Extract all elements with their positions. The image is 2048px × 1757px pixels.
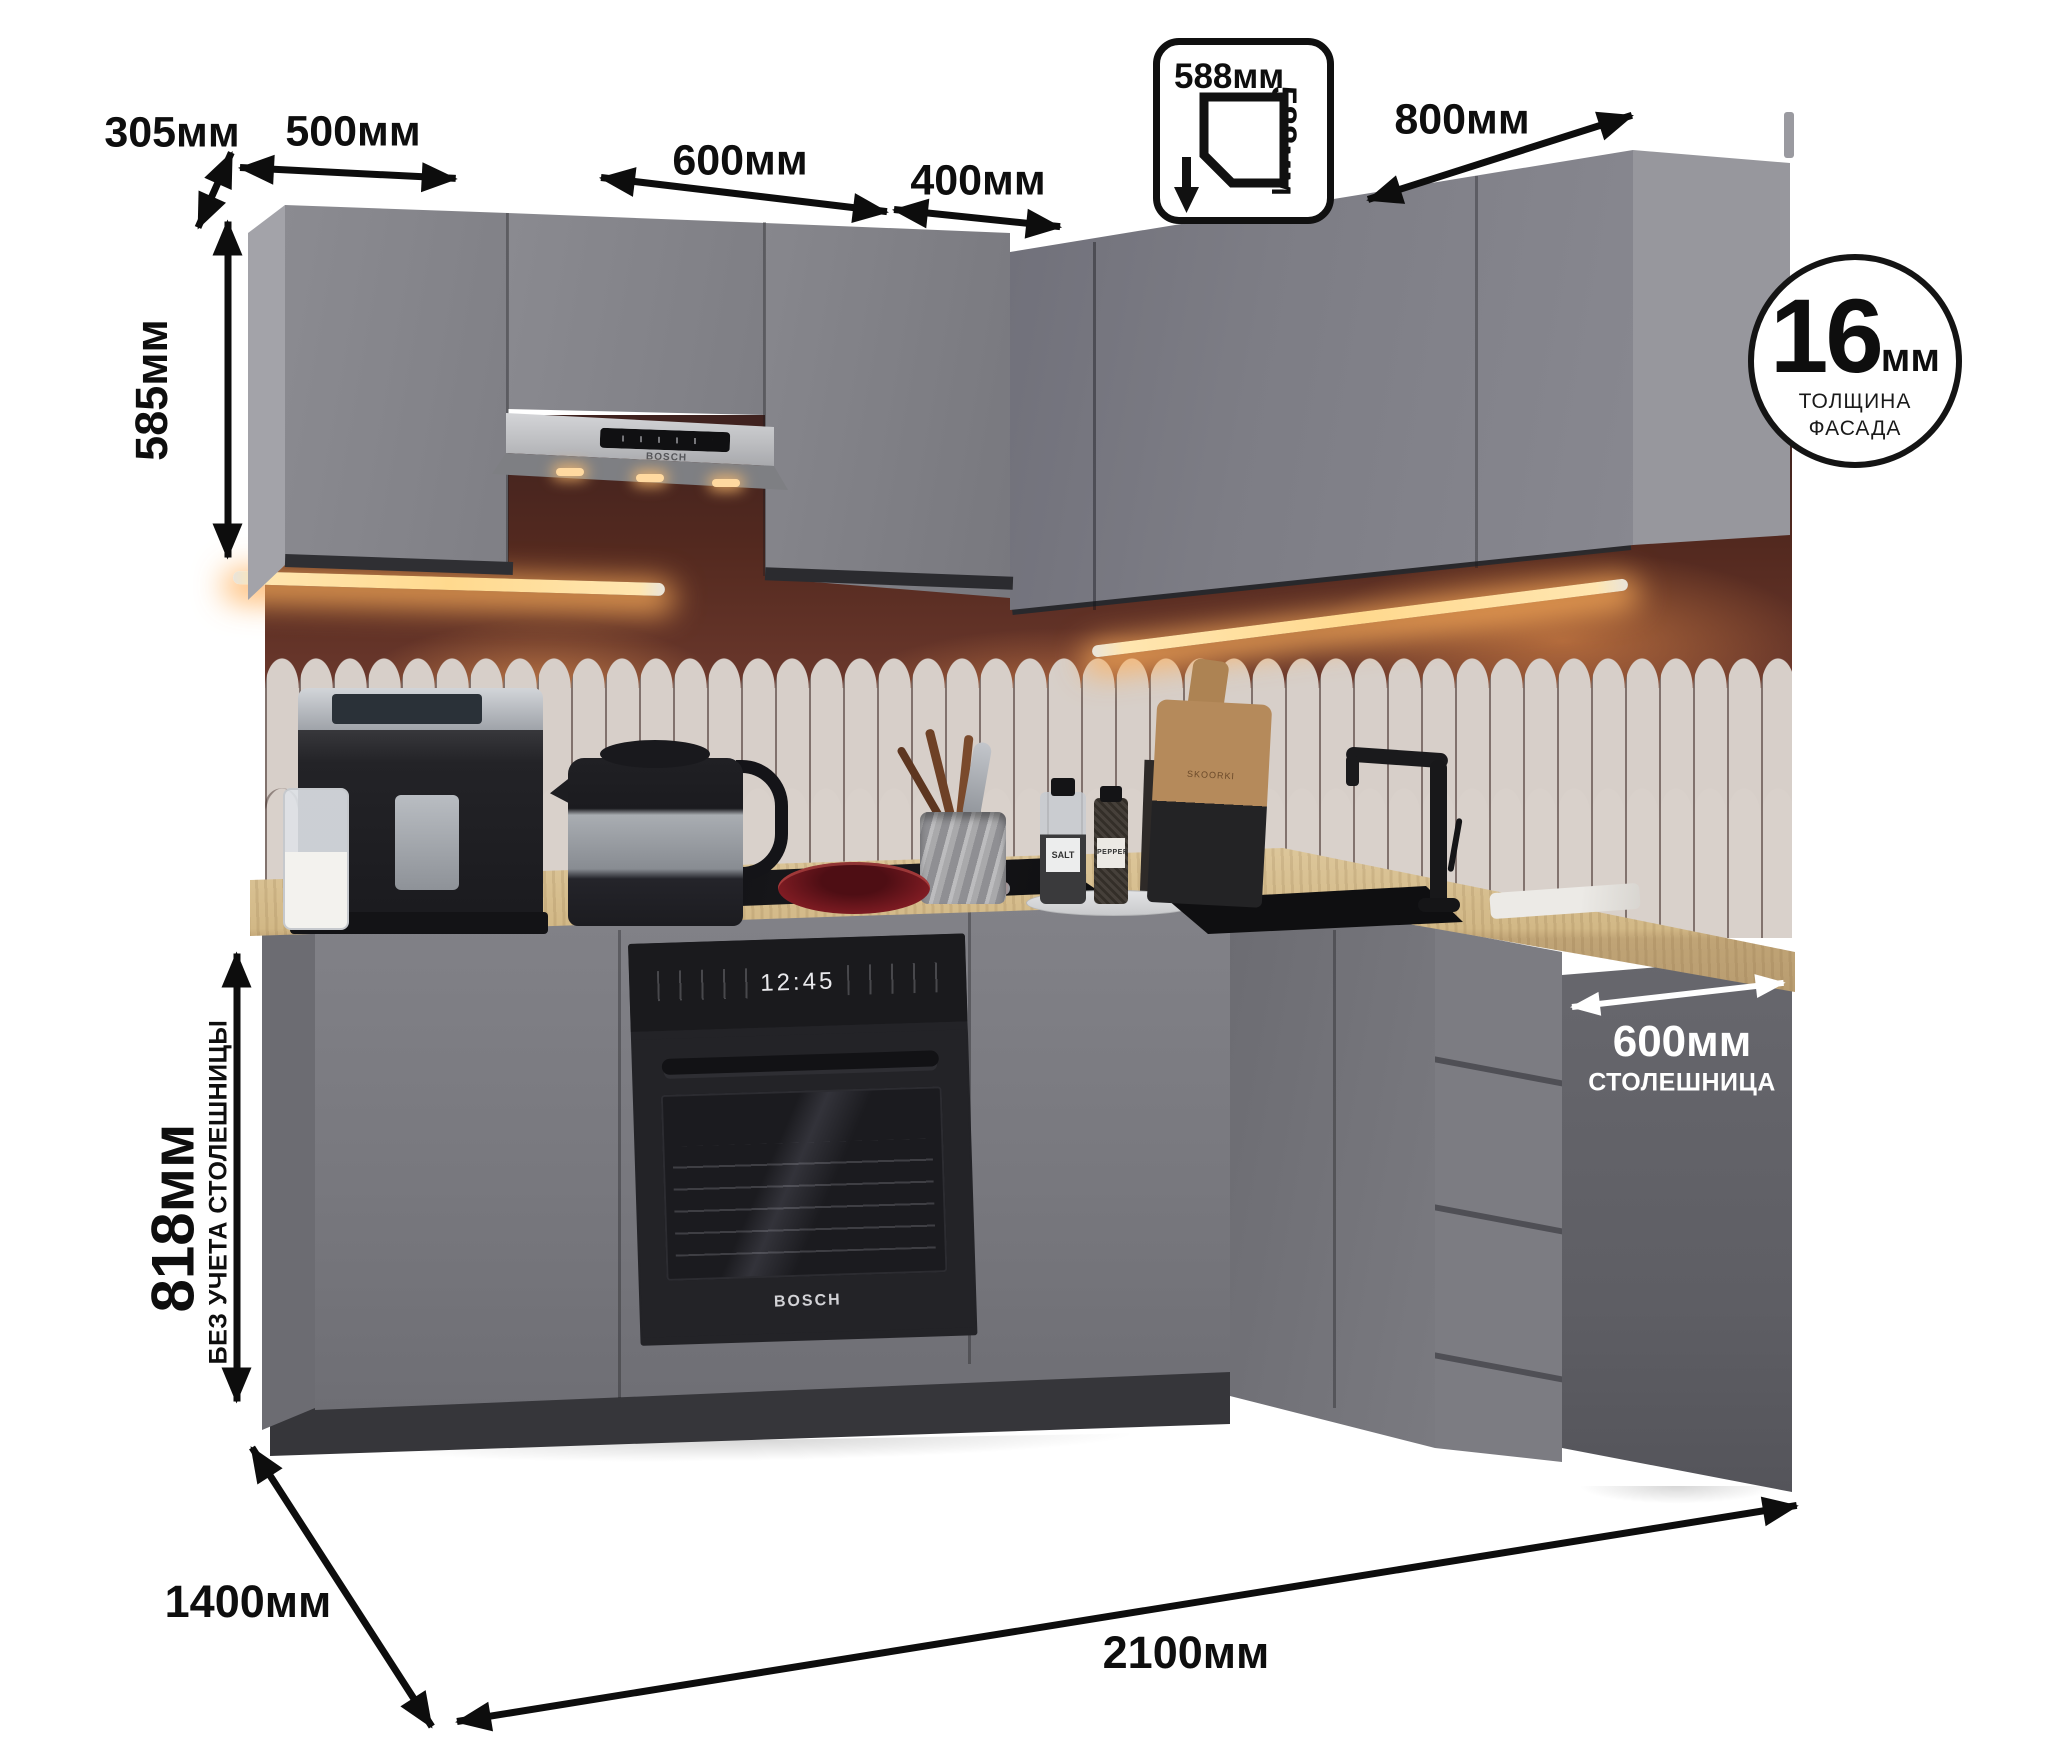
arrow-500 [240, 164, 456, 182]
hood-light-3 [712, 479, 740, 487]
hood-light-1 [556, 468, 584, 476]
arrow-305 [195, 151, 235, 229]
label-400: 400мм [910, 157, 1045, 206]
hood-light-2 [636, 474, 664, 482]
upper-cabinet-left-side-panel [248, 205, 285, 605]
pan-body [778, 862, 930, 914]
facade-thickness-unit: мм [1881, 338, 1940, 380]
faucet-spout-tip [1346, 756, 1359, 786]
base-left-side-panel [262, 928, 315, 1432]
facade-thickness-badge: 16 мм ТОЛЩИНА ФАСАДА [1748, 254, 1962, 468]
oven-door: BOSCH [633, 1029, 975, 1337]
pepper-grinder: PEPPER [1094, 798, 1128, 904]
kettle-lid [600, 740, 710, 768]
base-door-seam-1 [618, 930, 621, 1398]
drawer-gap-2 [1432, 1204, 1563, 1234]
faucet-column [1430, 760, 1447, 908]
oven-window [661, 1086, 948, 1281]
cutting-board: SKOORKI [1147, 699, 1272, 908]
corner-cabinet-badge: 588мм 588мм [1153, 38, 1334, 224]
label-500: 500мм [285, 108, 420, 157]
oven-control-panel: 12:45 [628, 933, 968, 1032]
pepper-cap [1100, 786, 1122, 802]
oven-rack-lines [672, 1139, 935, 1257]
wall-mount-bracket [1784, 112, 1794, 158]
utensil-crock [920, 812, 1006, 904]
oven-brand: BOSCH [774, 1291, 842, 1311]
kettle-body [568, 758, 743, 926]
salt-cap [1051, 778, 1075, 796]
label-countertop-caption: СТОЛЕШНИЦА [1588, 1069, 1776, 1098]
upper-cabinet-600-door [508, 213, 765, 415]
coffee-machine-screen [332, 694, 482, 724]
arrow-400 [894, 206, 1061, 230]
drawer-gap-1 [1432, 1056, 1563, 1086]
kitchen-dimension-diagram: BOSCH 12:45 BOSCH [0, 0, 2048, 1757]
base-drawer-stack [1435, 926, 1562, 1466]
upper-right-door-seam [1475, 176, 1478, 568]
label-600: 600мм [672, 137, 807, 186]
label-818-note: БЕЗ УЧЕТА СТОЛЕШНИЦЫ [205, 1020, 234, 1365]
oven-handle [662, 1050, 939, 1075]
upper-door-seam-1 [506, 213, 509, 569]
label-countertop-600: 600мм [1613, 1017, 1752, 1067]
arrow-818 [234, 954, 241, 1402]
faucet-base [1418, 898, 1460, 912]
label-1400: 1400мм [165, 1576, 332, 1628]
base-right-door-seam [1333, 930, 1336, 1408]
upper-door-seam-2 [763, 222, 766, 576]
oven-clock: 12:45 [760, 968, 836, 998]
oven: 12:45 BOSCH [628, 933, 977, 1345]
facade-caption-line2: ФАСАДА [1754, 415, 1956, 442]
range-hood-brand: BOSCH [646, 451, 687, 463]
cutting-board-brand: SKOORKI [1187, 769, 1235, 781]
salt-label: SALT [1046, 838, 1080, 872]
drawer-gap-3 [1432, 1352, 1563, 1382]
label-2100: 2100мм [1103, 1627, 1270, 1679]
down-arrow-icon [1174, 157, 1199, 213]
facade-thickness-value: 16 [1770, 294, 1881, 380]
pepper-label: PEPPER [1097, 838, 1125, 868]
corner-cabinet-icon [1172, 91, 1292, 217]
label-305: 305мм [104, 109, 239, 158]
label-818: 818мм [139, 1124, 208, 1313]
label-585: 585мм [126, 319, 178, 461]
salt-bottle: SALT [1040, 792, 1086, 904]
arrow-585 [225, 222, 232, 558]
coffee-machine-brew-unit [395, 795, 459, 890]
arrow-2100 [456, 1502, 1797, 1725]
upper-cabinet-400-door [765, 223, 1010, 598]
upper-cabinet-500-door [285, 205, 508, 572]
coffee-machine-milk-carafe [283, 788, 349, 930]
label-800: 800мм [1394, 96, 1529, 145]
upper-corner-seam [1093, 242, 1096, 610]
